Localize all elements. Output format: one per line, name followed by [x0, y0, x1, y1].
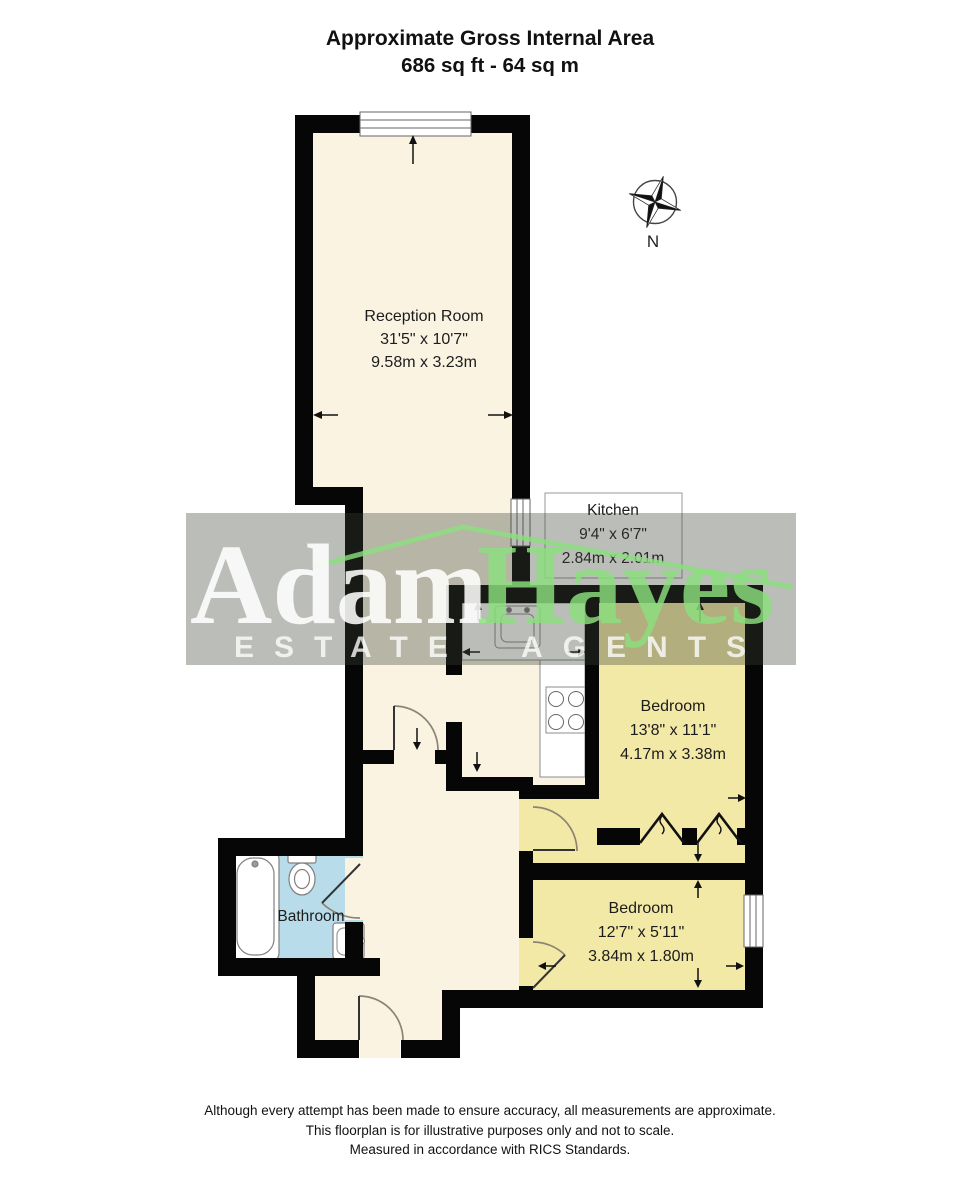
floorplan-page: Approximate Gross Internal Area 686 sq f… [0, 0, 980, 1181]
page-title: Approximate Gross Internal Area [326, 27, 655, 50]
bedroom1-label: Bedroom [641, 698, 706, 715]
reception-window [360, 112, 471, 136]
bathroom-doorway [345, 858, 363, 920]
stove-icon [546, 687, 585, 733]
reception-size-imperial: 31'5" x 10'7" [380, 331, 468, 348]
disclaimer-line-3: Measured in accordance with RICS Standar… [350, 1142, 631, 1157]
bedroom1-size-imperial: 13'8" x 11'1" [630, 722, 717, 739]
page-subtitle-area: 686 sq ft - 64 sq m [401, 54, 579, 77]
bedroom2-window [744, 895, 763, 947]
disclaimer: Although every attempt has been made to … [204, 1103, 776, 1157]
bathtub-icon [232, 847, 279, 962]
bedroom2-doorway [519, 938, 533, 986]
compass-north-label: N [647, 232, 659, 251]
reception-size-metric: 9.58m x 3.23m [371, 354, 477, 371]
disclaimer-line-2: This floorplan is for illustrative purpo… [306, 1123, 674, 1138]
disclaimer-line-1: Although every attempt has been made to … [204, 1103, 776, 1118]
bedroom2-label: Bedroom [609, 900, 674, 917]
bedroom1-doorway [519, 799, 533, 851]
watermark-brand-word1: Adam [190, 521, 488, 648]
floorplan-canvas: Approximate Gross Internal Area 686 sq f… [0, 0, 980, 1181]
bedroom2-size-imperial: 12'7" x 5'11" [598, 924, 685, 941]
toilet-icon [288, 852, 316, 895]
bedroom2-size-metric: 3.84m x 1.80m [588, 948, 694, 965]
reception-label: Reception Room [364, 308, 483, 325]
agency-watermark: Adam Hayes ESTATE AGENTS [186, 513, 796, 665]
watermark-brand-word2: Hayes [477, 521, 775, 648]
entry-doorway [360, 1040, 400, 1058]
compass-icon: N [621, 168, 689, 251]
bathroom-label: Bathroom [277, 908, 344, 925]
bedroom1-size-metric: 4.17m x 3.38m [620, 746, 726, 763]
watermark-tagline: ESTATE AGENTS [234, 631, 766, 664]
